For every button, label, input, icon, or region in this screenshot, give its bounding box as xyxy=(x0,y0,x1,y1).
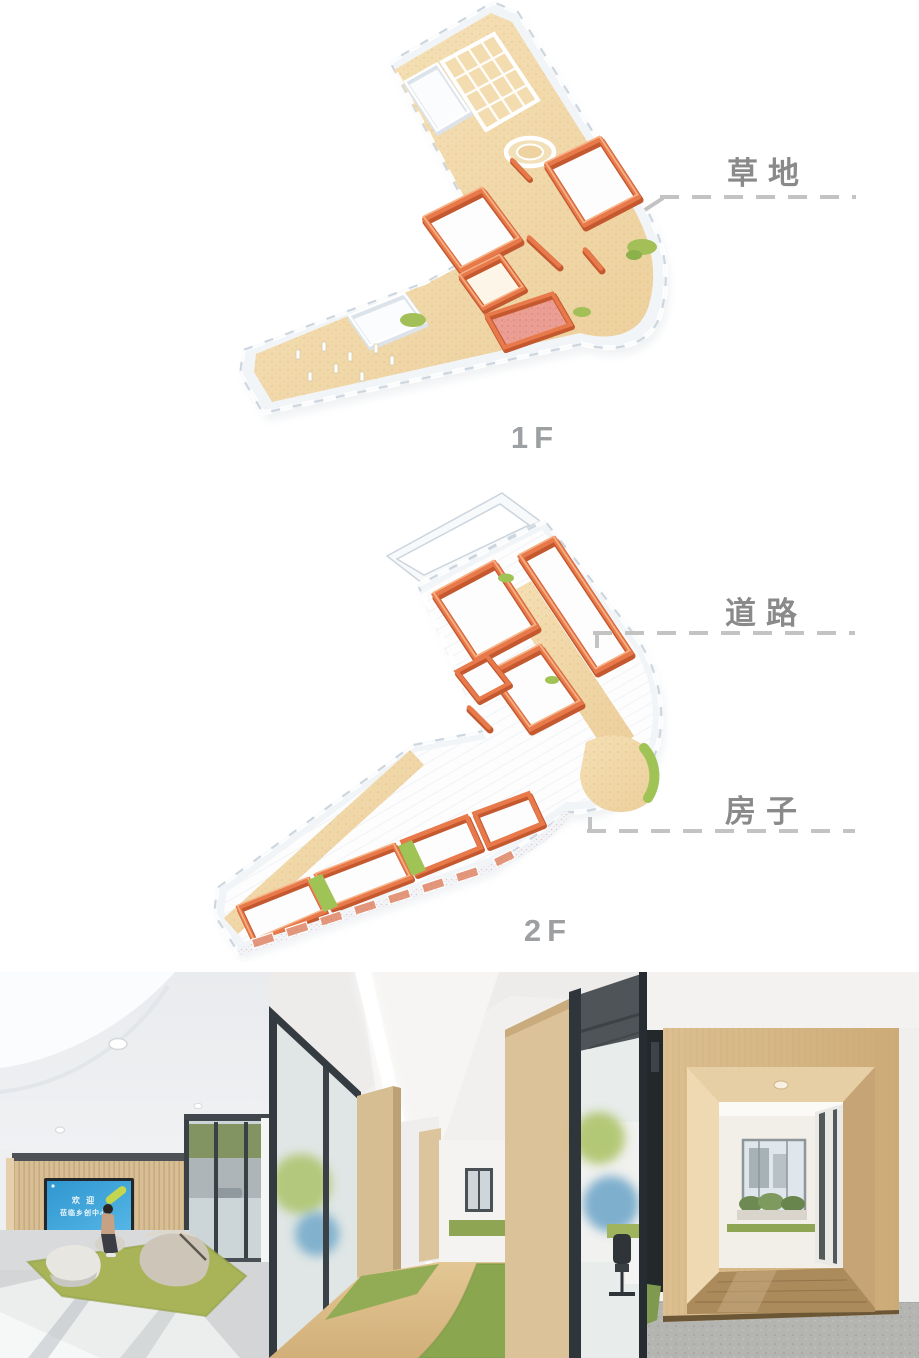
callout-road-label: 道路 xyxy=(656,588,876,633)
left-door-frame xyxy=(647,1030,663,1324)
plan-1f-axonometric xyxy=(230,0,692,462)
planter-greenery xyxy=(737,1193,807,1220)
tunnel-light xyxy=(774,1081,788,1089)
glass-decal-blue xyxy=(295,1212,339,1256)
glass-decal-blue xyxy=(583,1176,639,1232)
stone-pouf xyxy=(46,1245,101,1287)
photo-lobby-reception: 欢 迎 莅临乡创中心 xyxy=(0,972,269,1358)
glass-decal-green xyxy=(271,1154,331,1214)
screen-line1: 欢 迎 xyxy=(71,1195,96,1205)
photo-strip: 欢 迎 莅临乡创中心 xyxy=(0,972,919,1358)
recessed-light xyxy=(109,1039,127,1050)
photo-wood-portal xyxy=(647,972,919,1358)
plan-2f-axonometric xyxy=(200,478,700,962)
glass-frame xyxy=(639,972,647,1358)
recessed-light xyxy=(56,1127,65,1133)
portal-tunnel xyxy=(687,1067,875,1314)
tunnel-left-wall xyxy=(687,1067,719,1304)
screen-logo xyxy=(51,1184,54,1187)
leader-line-grass xyxy=(660,195,856,199)
floor-label-1f: 1F xyxy=(465,420,605,456)
right-wall-sliver xyxy=(899,1028,919,1302)
wood-pillar xyxy=(419,1128,441,1262)
tunnel-right-wall xyxy=(843,1067,875,1308)
leader-line-road xyxy=(593,631,855,635)
green-floor-far xyxy=(727,1224,823,1232)
corridor-far-end xyxy=(439,1140,513,1262)
callout-grass-label: 草地 xyxy=(658,148,878,193)
inner-glass-doors xyxy=(815,1104,843,1268)
green-wainscot xyxy=(449,1220,505,1236)
right-glass-partition xyxy=(569,972,647,1358)
glass-frame xyxy=(569,988,581,1358)
wood-pillar-large xyxy=(505,996,575,1358)
callout-house-label: 房子 xyxy=(656,786,876,831)
screen-line2: 莅临乡创中心 xyxy=(59,1208,108,1217)
welcome-screen: 欢 迎 莅临乡创中心 xyxy=(44,1178,134,1233)
floor-label-2f: 2F xyxy=(478,913,618,949)
leader-line-house xyxy=(587,829,855,833)
page: 草地 1F xyxy=(0,0,919,1358)
photo-office-corridor xyxy=(269,972,647,1358)
leader-line-house-corner xyxy=(588,817,592,829)
wood-pillar xyxy=(357,1086,393,1278)
leader-line-road-corner xyxy=(595,635,599,648)
recessed-light xyxy=(194,1103,202,1108)
